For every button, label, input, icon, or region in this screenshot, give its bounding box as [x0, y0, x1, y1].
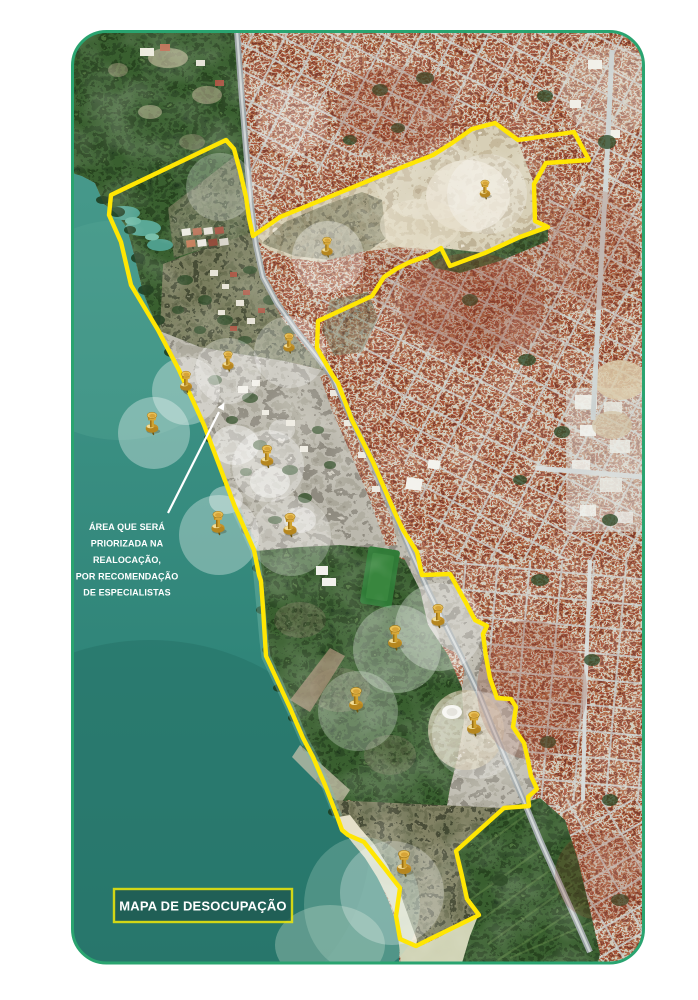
- svg-text:REALOCAÇÃO,: REALOCAÇÃO,: [93, 555, 161, 565]
- svg-text:PRIORIZADA NA: PRIORIZADA NA: [91, 539, 164, 549]
- svg-text:MAPA DE DESOCUPAÇÃO: MAPA DE DESOCUPAÇÃO: [119, 899, 287, 914]
- svg-text:ÁREA QUE SERÁ: ÁREA QUE SERÁ: [89, 522, 165, 532]
- svg-text:POR RECOMENDAÇÃO: POR RECOMENDAÇÃO: [76, 572, 179, 582]
- svg-text:DE ESPECIALISTAS: DE ESPECIALISTAS: [83, 588, 170, 598]
